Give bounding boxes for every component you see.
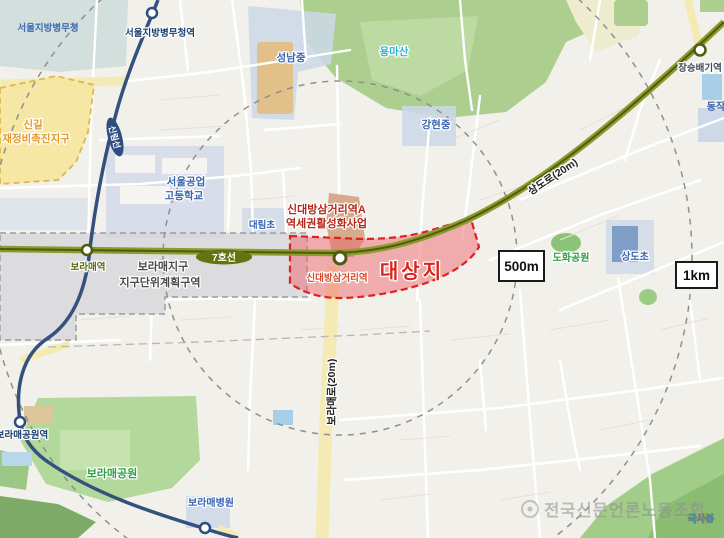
scale-500m: 500m	[499, 251, 544, 281]
map-canvas[interactable]: 7호선 신림선 서울지방병무청 서울지방병무청역 성남중 용마산 강현중 장승배…	[0, 0, 724, 538]
station-boramae	[82, 245, 92, 255]
label-yongmasan: 용마산	[380, 45, 409, 58]
station-boramae-hospital	[200, 523, 210, 533]
label-dohwa-park: 도화공원	[553, 251, 590, 264]
label-sangdo-school: 상도초	[621, 250, 649, 263]
station-gov-office	[147, 8, 157, 18]
scale-500m-label: 500m	[504, 259, 539, 274]
line7-badge: 7호선	[196, 250, 252, 265]
label-boramae-district-line2: 지구단위계획구역	[120, 275, 201, 289]
label-seoul-tech-line1: 서울공업	[167, 175, 206, 188]
label-project-line2: 역세권활성화사업	[286, 216, 367, 230]
label-daerim-school: 대림초	[249, 219, 275, 231]
label-guksabong: 국사봉	[688, 513, 714, 525]
label-gov-office-station: 서울지방병무청역	[125, 27, 195, 39]
label-project-line1: 신대방삼거리역A	[287, 202, 366, 216]
label-seongnam-school: 성남중	[277, 51, 306, 64]
label-seoul-tech-line2: 고등학교	[165, 189, 204, 202]
label-site: 대상지	[380, 260, 444, 283]
station-sindaebang	[334, 252, 346, 264]
label-singil-line1: 신길	[23, 118, 42, 131]
watermark: 전국신문언론노동조합	[522, 500, 706, 520]
scale-1km: 1km	[676, 262, 717, 288]
label-boramae-station: 보라매역	[71, 261, 106, 273]
watermark-text: 전국신문언론노동조합	[544, 500, 706, 520]
label-dongjak: 동작	[707, 100, 724, 113]
label-singil-line2: 재정비촉진지구	[2, 132, 70, 145]
scale-1km-label: 1km	[683, 268, 710, 283]
station-boramae-park	[15, 417, 25, 427]
label-gov-office: 서울지방병무청	[17, 22, 78, 34]
label-jangseungbaegi-station: 장승배기역	[678, 62, 722, 74]
label-sindaebang-station: 신대방삼거리역	[306, 272, 367, 284]
line7-badge-label: 7호선	[212, 251, 236, 264]
label-boramae-district-line1: 보라매지구	[138, 259, 189, 273]
map-svg: 7호선 신림선 서울지방병무청 서울지방병무청역 성남중 용마산 강현중 장승배…	[0, 0, 724, 538]
station-jangseungbaegi	[695, 45, 706, 56]
label-boramae-park-station: 보라매공원역	[0, 429, 48, 441]
label-boramae-road: 보라매로(20m)	[325, 359, 338, 426]
label-ganghyeon-school: 강현중	[422, 118, 451, 131]
label-boramae-park: 보라매공원	[87, 466, 138, 480]
label-boramae-hospital: 보라매병원	[188, 496, 234, 509]
